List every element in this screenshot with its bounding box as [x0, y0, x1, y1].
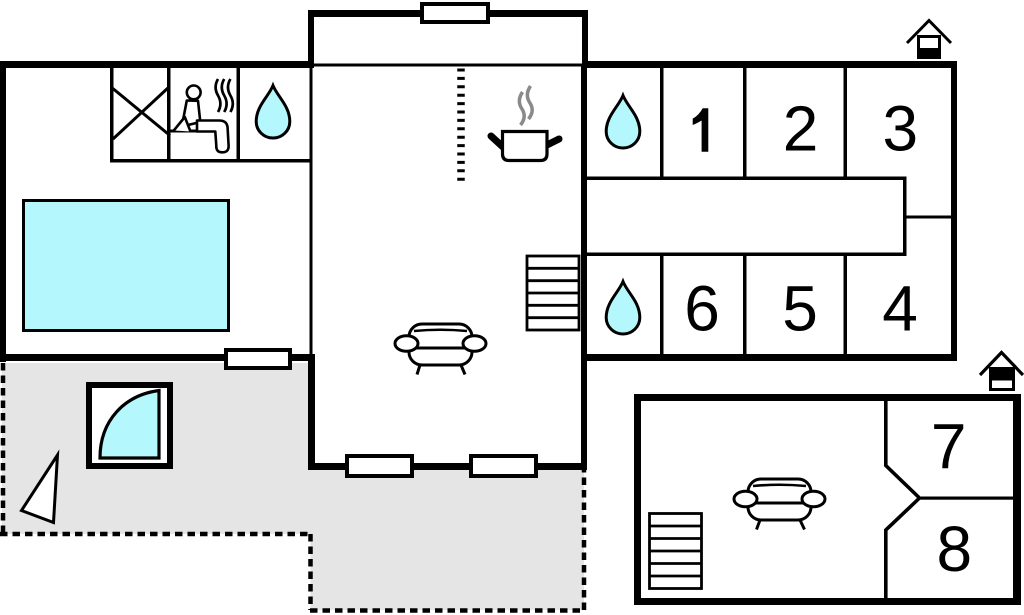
svg-text:6: 6 [684, 273, 720, 345]
svg-text:7: 7 [931, 411, 967, 483]
svg-text:8: 8 [937, 513, 973, 585]
svg-text:4: 4 [882, 273, 918, 345]
svg-text:2: 2 [783, 93, 819, 165]
svg-text:5: 5 [782, 273, 818, 345]
svg-text:3: 3 [883, 93, 919, 165]
